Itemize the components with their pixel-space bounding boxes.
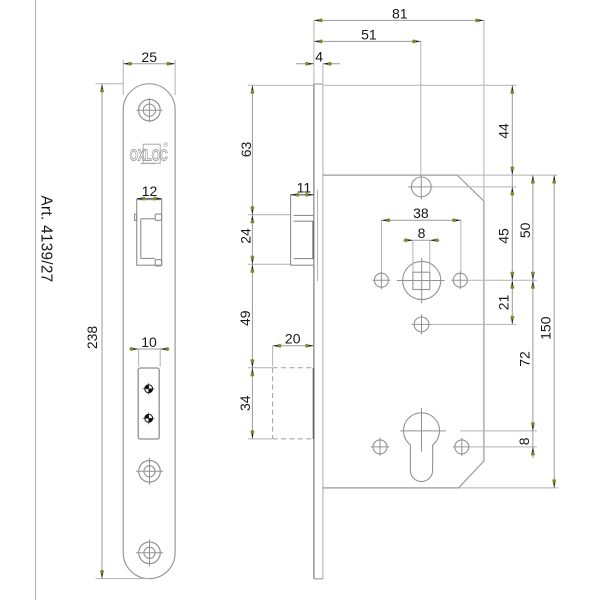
svg-text:8: 8 xyxy=(418,225,426,241)
svg-text:49: 49 xyxy=(237,310,253,326)
svg-text:8: 8 xyxy=(516,437,532,445)
svg-text:Art. 4139/27: Art. 4139/27 xyxy=(38,196,55,283)
svg-text:38: 38 xyxy=(413,205,429,221)
svg-text:238: 238 xyxy=(84,326,100,350)
svg-text:63: 63 xyxy=(238,142,254,158)
svg-text:51: 51 xyxy=(361,26,377,42)
svg-text:11: 11 xyxy=(297,180,312,196)
svg-text:21: 21 xyxy=(496,295,512,311)
svg-text:4: 4 xyxy=(315,48,323,64)
svg-text:45: 45 xyxy=(496,228,512,244)
svg-text:150: 150 xyxy=(538,316,554,340)
svg-text:50: 50 xyxy=(517,222,533,238)
svg-text:12: 12 xyxy=(142,183,158,199)
svg-text:24: 24 xyxy=(237,228,253,244)
svg-text:10: 10 xyxy=(141,334,157,350)
svg-text:25: 25 xyxy=(141,49,157,65)
svg-text:20: 20 xyxy=(285,330,301,346)
svg-text:OXLOC: OXLOC xyxy=(130,147,168,164)
svg-text:®: ® xyxy=(163,141,168,149)
svg-text:81: 81 xyxy=(392,5,408,21)
svg-text:44: 44 xyxy=(496,123,512,139)
svg-text:34: 34 xyxy=(237,395,253,411)
svg-text:72: 72 xyxy=(516,351,532,367)
